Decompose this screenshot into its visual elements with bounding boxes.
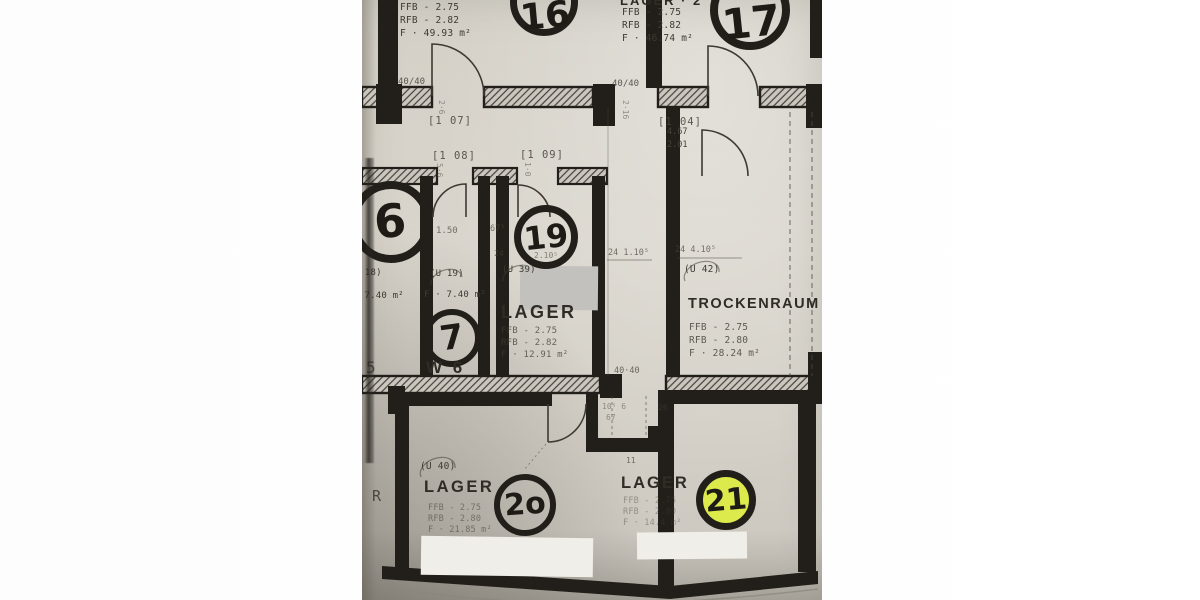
room16-spec-line: FFB - 2.75 xyxy=(400,2,459,13)
room19-name: LAGER xyxy=(501,302,577,323)
room-7-number: 7 xyxy=(429,315,474,360)
room-ref-label: [1 07] xyxy=(428,115,472,127)
paper-fold-shadow xyxy=(364,158,374,463)
floorplan-photo: FFB - 2.75 RFB - 2.82 F · 49.93 m² 16 LA… xyxy=(362,0,822,600)
dim-chain: 24 4.10⁵ xyxy=(675,245,716,255)
trockenraum-spec-line: FFB - 2.75 xyxy=(689,322,748,333)
room21-corner-dim: 11 xyxy=(626,456,636,465)
niche-dim: 10⁵ 6 xyxy=(602,402,626,411)
wall-room20-top xyxy=(388,392,552,406)
room-6-number: 6 xyxy=(368,192,413,249)
room-19-number: 19 xyxy=(520,216,572,259)
room21-name: LAGER xyxy=(621,474,689,493)
wall-dim-label: 40/40 xyxy=(398,77,425,87)
niche-dim: 26 xyxy=(658,403,668,412)
wall-left-top xyxy=(378,0,398,88)
room7-caption: W 6 xyxy=(426,358,465,378)
dim-chain: 24 1.10⁵ xyxy=(608,248,649,258)
wall-room20-left xyxy=(395,402,409,574)
wall-pillar xyxy=(593,84,615,126)
room20-spec-line: F · 21.85 m² xyxy=(428,525,492,535)
wall-niche-bottom xyxy=(586,438,664,452)
door-dim: 2.01 xyxy=(667,140,687,150)
room20-spec-line: RFB - 2.80 xyxy=(428,514,481,524)
room19-spec-line: F · 12.91 m² xyxy=(501,350,568,360)
redaction-box xyxy=(421,536,594,577)
room19-unit: (U 39) xyxy=(502,265,536,275)
screenshot-root: FFB - 2.75 RFB - 2.82 F · 49.93 m² 16 LA… xyxy=(0,0,1200,600)
room16-spec-line: F · 49.93 m² xyxy=(400,28,471,39)
room-ref-label: [1 09] xyxy=(520,149,564,161)
room-20-number: 2o xyxy=(501,485,549,523)
trockenraum-spec-line: F · 28.24 m² xyxy=(689,348,760,359)
dim-24: 24 xyxy=(494,249,504,258)
room21-spec-line: FFB - 2.75 xyxy=(623,496,676,506)
room20-name: LAGER xyxy=(424,478,494,497)
room21-spec-line: RFB - 2.80 xyxy=(623,507,676,517)
wall-dim-label: 40/40 xyxy=(612,79,639,89)
room19-spec-line: FFB - 2.75 xyxy=(501,326,557,336)
room7-unit: (U 19) xyxy=(430,269,464,279)
door-dim: 4.67 xyxy=(667,127,687,137)
trockenraum-name: TROCKENRAUM / ZB xyxy=(688,296,822,312)
room7-width-dim: 1.50 xyxy=(436,226,458,236)
niche-dim: 67 xyxy=(606,413,616,422)
room16-spec-line: RFB - 2.82 xyxy=(400,15,459,26)
room7-area: F · 7.40 m² xyxy=(424,290,486,300)
room17-spec-line: RFB - 2.82 xyxy=(622,20,681,31)
room21-spec-line: F · 14.4 m² xyxy=(623,518,682,528)
room-ref-label: [1 08] xyxy=(432,150,476,162)
dim-stack: 5·6 xyxy=(435,163,444,177)
wall-dim-label: 40·40 xyxy=(614,366,640,376)
wall-room21-right xyxy=(798,398,816,572)
dim-stack: 2·6 xyxy=(437,100,446,114)
cropped-text-fragment: R xyxy=(372,487,381,505)
room17-spec-line: F · 46.74 m² xyxy=(622,33,693,44)
room20-spec-line: FFB - 2.75 xyxy=(428,503,481,513)
dim-stack: 1·0 xyxy=(523,162,532,176)
room-17-number: 17 xyxy=(720,0,781,50)
room20-unit: (U 40) xyxy=(420,461,456,472)
dim-stack: 2·16 xyxy=(621,100,630,119)
trockenraum-spec-line: RFB - 2.80 xyxy=(689,335,748,346)
redaction-box xyxy=(637,532,747,560)
room-16-number: 16 xyxy=(518,0,569,39)
room-21-number: 21 xyxy=(703,481,750,520)
room17-spec-line: FFB - 2.75 xyxy=(622,7,681,18)
dim-675: 67⁵ xyxy=(490,224,505,234)
trockenraum-unit: (U 42) xyxy=(684,264,720,275)
room19-spec-line: RFB - 2.82 xyxy=(501,338,557,348)
wall-room21-bottom xyxy=(670,571,818,599)
